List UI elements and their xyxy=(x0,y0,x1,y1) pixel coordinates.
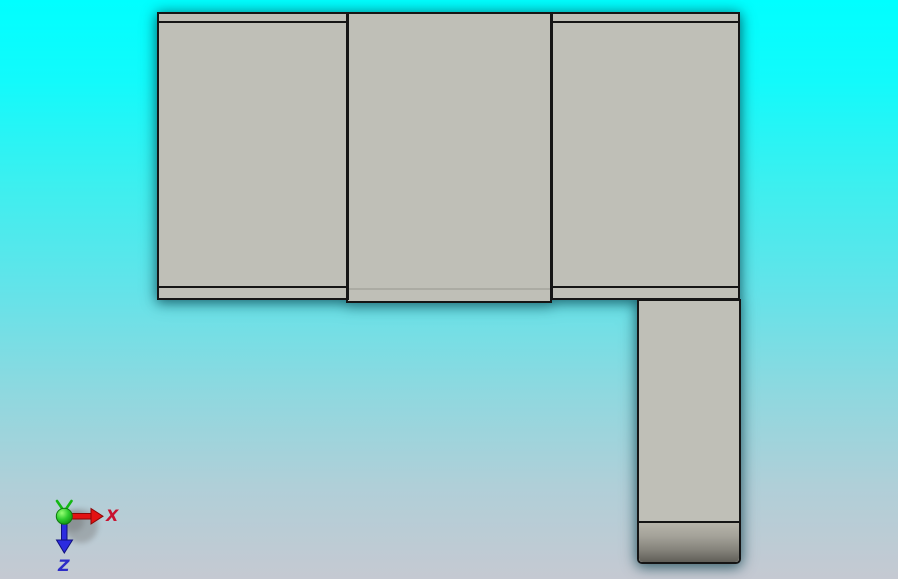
panel-divider-edge-left xyxy=(346,12,349,300)
top-rail-edge-left xyxy=(157,21,347,23)
lower-vertical-panel[interactable] xyxy=(637,299,741,564)
top-rail-edge-right xyxy=(551,21,740,23)
x-axis-label: X xyxy=(105,506,119,525)
upper-panel-run[interactable] xyxy=(157,12,740,300)
orientation-triad: X Z xyxy=(45,492,135,579)
middle-panel-seam-edge xyxy=(349,288,550,290)
z-axis-label: Z xyxy=(57,556,70,575)
cad-3d-viewport[interactable]: X Z xyxy=(0,0,898,579)
y-axis-ball xyxy=(56,501,72,524)
lower-panel-shaded-face[interactable] xyxy=(639,521,739,562)
middle-panel-bottom-lip[interactable] xyxy=(346,294,552,303)
bottom-rail-edge-right xyxy=(551,286,740,288)
bottom-rail-edge-left xyxy=(157,286,347,288)
panel-divider-edge-right xyxy=(550,12,553,300)
